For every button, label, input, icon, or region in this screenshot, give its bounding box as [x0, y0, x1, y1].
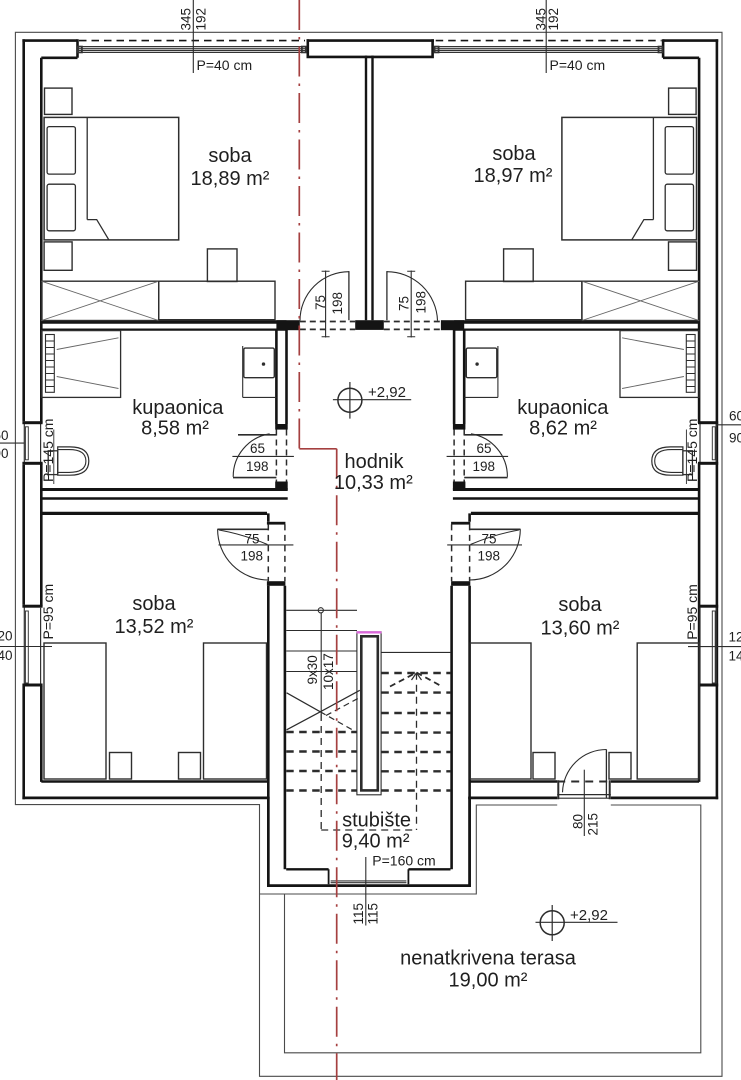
svg-text:8,58 m²: 8,58 m² — [141, 418, 209, 440]
svg-text:P=40 cm: P=40 cm — [550, 57, 606, 73]
svg-text:115: 115 — [351, 903, 366, 925]
svg-text:+2,92: +2,92 — [368, 384, 406, 401]
svg-text:192: 192 — [546, 8, 561, 31]
svg-text:80: 80 — [571, 814, 586, 829]
svg-text:nenatkrivena terasa: nenatkrivena terasa — [400, 948, 577, 970]
svg-text:13,52 m²: 13,52 m² — [115, 616, 194, 638]
svg-text:115: 115 — [366, 903, 381, 925]
svg-text:soba: soba — [492, 143, 536, 165]
svg-text:soba: soba — [132, 593, 176, 615]
svg-text:hodnik: hodnik — [345, 451, 405, 473]
svg-text:345: 345 — [179, 8, 194, 31]
svg-text:198: 198 — [246, 459, 269, 474]
svg-text:19,00 m²: 19,00 m² — [449, 970, 528, 992]
svg-text:215: 215 — [586, 813, 601, 836]
svg-text:P=95 cm: P=95 cm — [684, 584, 700, 640]
svg-text:75: 75 — [482, 532, 497, 547]
svg-text:soba: soba — [208, 145, 252, 167]
svg-text:soba: soba — [558, 594, 602, 616]
svg-text:+2,92: +2,92 — [570, 907, 608, 924]
svg-text:P=40 cm: P=40 cm — [197, 57, 253, 73]
svg-text:75: 75 — [397, 296, 412, 311]
svg-text:192: 192 — [193, 8, 208, 31]
svg-text:kupaonica: kupaonica — [517, 397, 609, 419]
svg-text:P=160 cm: P=160 cm — [372, 853, 435, 869]
svg-text:kupaonica: kupaonica — [132, 397, 224, 419]
svg-text:P=145 cm: P=145 cm — [40, 419, 56, 482]
svg-text:P=145 cm: P=145 cm — [684, 419, 700, 482]
svg-text:P=95 cm: P=95 cm — [40, 584, 56, 640]
svg-text:10,33 m²: 10,33 m² — [334, 472, 413, 494]
svg-text:90: 90 — [729, 431, 741, 446]
svg-text:13,60 m²: 13,60 m² — [541, 618, 620, 640]
svg-text:75: 75 — [313, 295, 328, 310]
svg-text:198: 198 — [413, 291, 428, 314]
svg-text:145: 145 — [729, 649, 741, 664]
svg-text:60: 60 — [0, 428, 9, 443]
svg-text:60: 60 — [729, 409, 741, 424]
svg-text:140: 140 — [0, 648, 13, 663]
svg-text:65: 65 — [477, 441, 492, 456]
svg-text:120: 120 — [0, 629, 13, 644]
svg-text:9x30: 9x30 — [305, 655, 320, 684]
svg-text:198: 198 — [330, 292, 345, 315]
svg-text:65: 65 — [250, 441, 265, 456]
svg-text:125: 125 — [729, 630, 741, 645]
svg-text:198: 198 — [478, 549, 501, 564]
svg-text:198: 198 — [473, 459, 496, 474]
svg-text:stubište: stubište — [342, 810, 411, 832]
svg-text:18,97 m²: 18,97 m² — [474, 165, 553, 187]
svg-text:8,62 m²: 8,62 m² — [529, 418, 597, 440]
svg-text:75: 75 — [245, 532, 260, 547]
svg-text:10x17: 10x17 — [321, 653, 336, 690]
svg-text:198: 198 — [241, 549, 264, 564]
svg-text:9,40 m²: 9,40 m² — [342, 831, 410, 853]
svg-text:90: 90 — [0, 446, 9, 461]
svg-text:18,89 m²: 18,89 m² — [191, 168, 270, 190]
